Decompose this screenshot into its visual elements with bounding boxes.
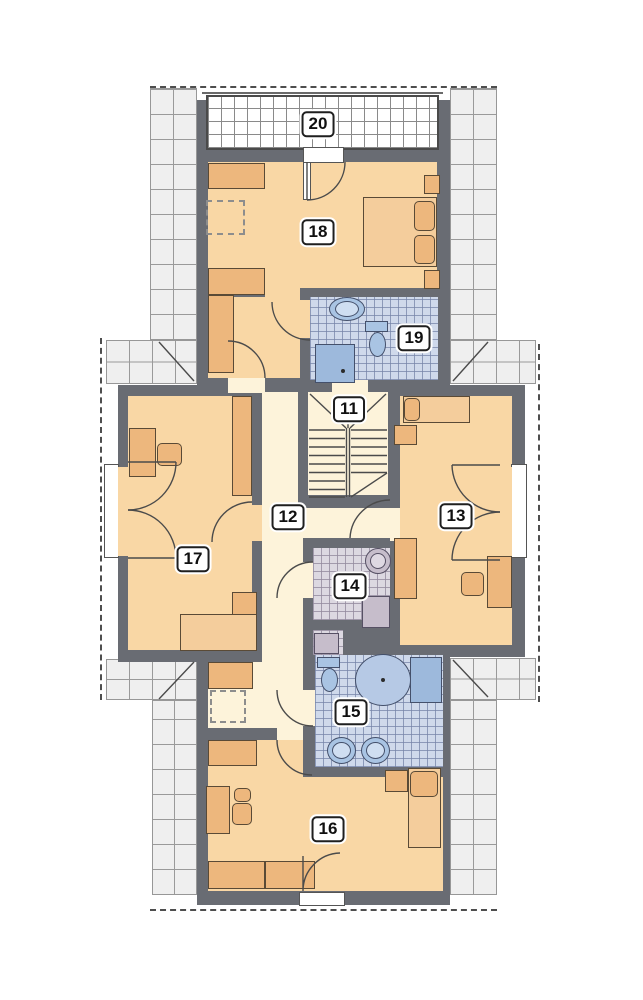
pillow	[404, 398, 420, 421]
roof-hatch-right-wing-top	[450, 340, 536, 384]
room-label-14: 14	[334, 573, 367, 599]
nightstand	[424, 175, 440, 194]
sink-basin	[332, 742, 351, 759]
dashed-skylight-outline	[210, 690, 246, 723]
balcony-door-threshold	[303, 147, 344, 163]
roof-edge-dashed-right	[538, 344, 540, 702]
roof-hatch-top-right	[450, 88, 497, 340]
door-opening-bath-14	[303, 562, 313, 598]
roof-edge-dashed-bottom	[150, 909, 497, 911]
nightstand	[424, 270, 440, 289]
pillow	[410, 771, 438, 797]
washing-machine	[314, 633, 339, 654]
room-label-18: 18	[302, 219, 335, 245]
balcony-railing	[202, 92, 443, 94]
sink-basin	[366, 742, 385, 759]
sink-basin	[335, 301, 359, 317]
nightstand	[394, 425, 417, 445]
wardrobe	[208, 163, 265, 189]
room-label-17: 17	[177, 546, 210, 572]
pillow	[414, 235, 435, 264]
exterior-door-threshold-bottom	[299, 892, 345, 906]
roof-edge-dashed-top	[150, 86, 497, 88]
wardrobe	[232, 396, 252, 496]
door-opening-bath-19	[300, 300, 310, 338]
roof-hatch-left-wing-bottom	[106, 659, 197, 700]
balcony-door-threshold-17	[104, 464, 119, 558]
room-label-19: 19	[398, 325, 431, 351]
chair	[157, 443, 182, 466]
wardrobe	[208, 295, 234, 373]
sink-basin	[370, 553, 386, 569]
balcony-door-opening-13	[500, 467, 512, 556]
balcony-door-leaf	[303, 162, 311, 200]
roof-edge-dashed-left	[100, 338, 102, 700]
dashed-furniture-outline	[206, 200, 245, 235]
toilet-tank	[365, 321, 388, 332]
roof-hatch-left-wing-top	[106, 340, 197, 384]
room-label-11: 11	[333, 396, 365, 422]
room-label-20: 20	[302, 111, 335, 137]
wardrobe	[208, 662, 253, 689]
roof-hatch-right-wing-bottom	[450, 658, 536, 700]
nightstand	[385, 770, 408, 792]
hallway-floor-top	[262, 392, 298, 508]
chair	[232, 803, 252, 825]
floor-plan: 20 18 19 11 12 13 17 14 15 16	[0, 0, 643, 1000]
room-label-16: 16	[312, 816, 345, 842]
room-label-12: 12	[272, 504, 305, 530]
balcony-door-threshold-13	[511, 464, 527, 558]
door-opening-landing-hall	[228, 378, 265, 393]
toilet-tank	[317, 657, 340, 668]
door-opening-bath-15	[303, 690, 315, 726]
room-label-13: 13	[440, 503, 473, 529]
desk	[206, 786, 230, 834]
roof-hatch-bottom-right	[450, 700, 497, 895]
door-opening-room-17	[252, 505, 262, 541]
bathtub-drain	[381, 678, 385, 682]
printer	[234, 788, 251, 802]
toilet-bowl	[321, 668, 338, 692]
roof-hatch-top-left	[150, 88, 197, 340]
balcony-door-opening-17	[118, 467, 128, 556]
wardrobe	[208, 268, 265, 295]
bed	[180, 614, 257, 651]
dresser	[208, 861, 265, 889]
door-opening-room-13	[390, 508, 400, 541]
shower-drain	[341, 369, 345, 373]
door-opening-room-16	[277, 728, 303, 740]
roof-hatch-bottom-left	[152, 700, 197, 895]
shower-tray	[315, 344, 355, 383]
toilet-bowl	[369, 332, 386, 357]
wardrobe	[394, 538, 417, 599]
shower	[410, 657, 442, 703]
room-label-15: 15	[335, 699, 368, 725]
chair	[461, 572, 484, 596]
desk	[129, 428, 156, 477]
desk	[487, 556, 512, 608]
pillow	[414, 201, 435, 231]
wardrobe	[208, 740, 257, 766]
nightstand	[232, 592, 257, 615]
dresser	[265, 861, 315, 889]
shower-mat	[362, 596, 390, 628]
